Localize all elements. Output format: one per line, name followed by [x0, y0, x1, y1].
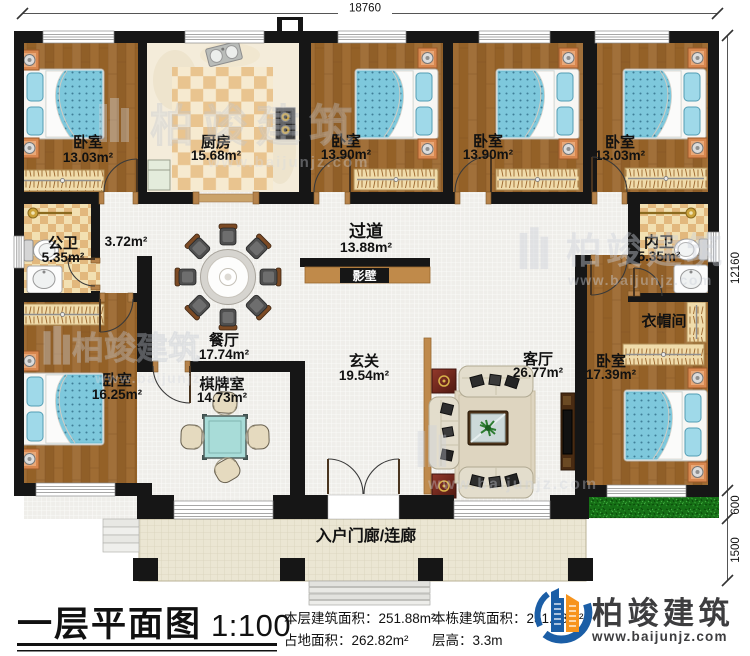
svg-text:层高：3.3m: 层高：3.3m — [432, 632, 503, 648]
svg-text:26.77m²: 26.77m² — [513, 365, 564, 380]
svg-text:12160: 12160 — [730, 252, 742, 284]
svg-text:www.baijunjz.com: www.baijunjz.com — [94, 370, 240, 386]
svg-text:13.03m²: 13.03m² — [63, 150, 114, 165]
svg-text:14.73m²: 14.73m² — [197, 390, 248, 405]
svg-text:www.baijunjz.com: www.baijunjz.com — [567, 272, 713, 288]
svg-text:柏竣建筑: 柏竣建筑 — [592, 596, 734, 631]
svg-text:www.baijunjz.com: www.baijunjz.com — [207, 154, 369, 171]
svg-text:www.baijunjz.com: www.baijunjz.com — [591, 629, 728, 644]
svg-text:1:100: 1:100 — [211, 608, 291, 643]
svg-text:13.03m²: 13.03m² — [595, 148, 646, 163]
svg-text:19.54m²: 19.54m² — [339, 368, 390, 383]
svg-text:衣帽间: 衣帽间 — [641, 312, 686, 330]
svg-text:入户门廊/连廊: 入户门廊/连廊 — [316, 526, 416, 545]
svg-text:影壁: 影壁 — [352, 268, 376, 283]
svg-text:17.39m²: 17.39m² — [586, 367, 637, 382]
svg-text:卧室: 卧室 — [73, 133, 103, 151]
svg-text:17.74m²: 17.74m² — [199, 347, 250, 362]
svg-text:本层建筑面积：251.88m²: 本层建筑面积：251.88m² — [284, 611, 436, 626]
svg-text:过道: 过道 — [349, 221, 383, 241]
svg-text:600: 600 — [730, 495, 742, 514]
svg-text:13.90m²: 13.90m² — [463, 147, 514, 162]
svg-text:柏竣建筑: 柏竣建筑 — [150, 102, 362, 151]
svg-text:一层平面图: 一层平面图 — [17, 605, 202, 644]
svg-text:柏竣建筑: 柏竣建筑 — [72, 330, 200, 366]
svg-text:16.25m²: 16.25m² — [92, 387, 143, 402]
svg-text:www.baijunjz.com: www.baijunjz.com — [427, 476, 598, 493]
svg-text:3.72m²: 3.72m² — [105, 234, 148, 249]
svg-text:13.88m²: 13.88m² — [340, 239, 392, 255]
svg-text:18760: 18760 — [349, 3, 381, 15]
svg-text:5.35m²: 5.35m² — [42, 250, 85, 265]
svg-text:占地面积：262.82m²: 占地面积：262.82m² — [284, 633, 409, 648]
svg-text:1500: 1500 — [730, 537, 742, 563]
svg-text:柏竣建筑: 柏竣建筑 — [566, 230, 726, 271]
